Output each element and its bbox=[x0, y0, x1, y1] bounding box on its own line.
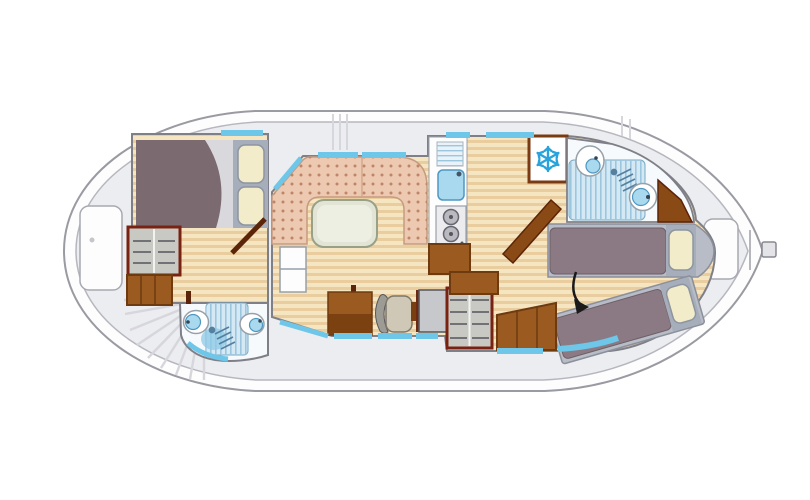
pillow bbox=[238, 187, 264, 225]
helm-post bbox=[411, 302, 416, 321]
bow-wardrobe bbox=[127, 227, 180, 305]
boat-floor-plan bbox=[0, 0, 810, 500]
helm-console bbox=[416, 290, 449, 332]
helm-wardrobe bbox=[447, 288, 492, 348]
window bbox=[416, 333, 438, 339]
bow-bathroom-door-jamb bbox=[186, 291, 191, 304]
pillow bbox=[238, 145, 264, 183]
saloon-table-top bbox=[317, 205, 372, 242]
bow-locker-latch bbox=[90, 238, 95, 243]
window bbox=[318, 152, 358, 158]
fridge bbox=[529, 136, 567, 182]
bow-toilet bbox=[184, 311, 209, 334]
window bbox=[221, 130, 263, 136]
aft-toilet bbox=[630, 184, 657, 211]
helm-chair bbox=[376, 295, 413, 334]
window bbox=[446, 132, 470, 138]
window bbox=[362, 152, 406, 158]
galley-cabinet bbox=[429, 244, 470, 274]
galley-cabinet-low bbox=[450, 272, 498, 294]
helm-bench bbox=[328, 292, 372, 335]
rudder bbox=[762, 242, 776, 257]
window bbox=[486, 132, 534, 138]
galley-faucet bbox=[457, 172, 462, 177]
bow-locker bbox=[80, 206, 122, 290]
window bbox=[378, 333, 412, 339]
aft-sink bbox=[576, 146, 604, 176]
galley-drainer bbox=[437, 142, 463, 166]
saloon-steps bbox=[280, 247, 306, 292]
window bbox=[334, 333, 372, 339]
aft-bed-top bbox=[548, 224, 714, 277]
bow-cabin bbox=[127, 134, 268, 305]
galley-stove bbox=[436, 206, 466, 246]
floor-plan-canvas bbox=[0, 0, 810, 500]
window bbox=[497, 348, 543, 354]
bow-sink bbox=[240, 314, 264, 335]
